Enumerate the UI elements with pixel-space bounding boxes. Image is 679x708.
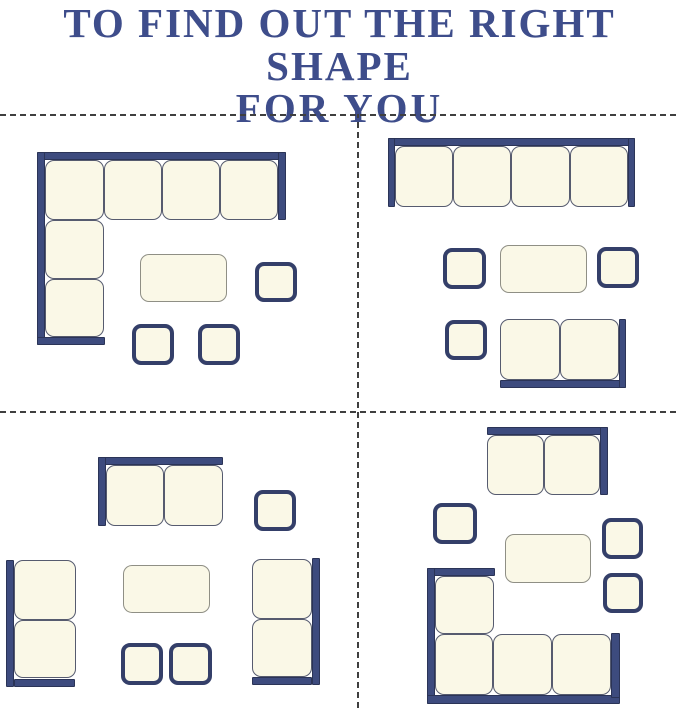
side-ottoman — [433, 503, 477, 544]
corner-sectional-sofa-cushion — [552, 634, 611, 695]
corner-sectional-sofa-back-bar — [37, 152, 45, 345]
side-ottoman — [254, 490, 296, 531]
four-seat-sofa-back-bar — [388, 138, 395, 207]
corner-sectional-sofa-cushion — [45, 279, 104, 337]
corner-sectional-sofa-back-bar — [37, 337, 105, 345]
left-loveseat-cushion — [14, 620, 76, 678]
coffee-table — [500, 245, 587, 293]
side-ottoman — [255, 262, 297, 302]
loveseat-cushion — [500, 319, 560, 380]
corner-sectional-sofa-back-bar — [37, 152, 286, 160]
loveseat-cushion — [487, 435, 544, 495]
coffee-table — [123, 565, 210, 613]
four-seat-sofa-cushion — [570, 146, 628, 207]
right-loveseat-back-bar — [252, 677, 312, 685]
page-title: TO FIND OUT THE RIGHT SHAPE FOR YOU — [0, 2, 679, 130]
loveseat-back-bar — [500, 380, 626, 388]
left-loveseat-back-bar — [6, 560, 14, 687]
side-ottoman — [603, 573, 643, 613]
side-ottoman — [443, 248, 486, 289]
corner-sectional-sofa-back-bar — [611, 633, 620, 698]
ottoman — [121, 643, 163, 685]
section-divider-v — [357, 114, 359, 708]
loveseat-back-bar — [619, 319, 626, 388]
corner-sectional-sofa-back-bar — [427, 568, 495, 576]
four-seat-sofa-back-bar — [388, 138, 635, 146]
corner-sectional-sofa-cushion — [220, 160, 278, 220]
corner-sectional-sofa-cushion — [45, 160, 104, 220]
four-seat-sofa-cushion — [453, 146, 511, 207]
four-seat-sofa-cushion — [395, 146, 453, 207]
loveseat-cushion — [106, 465, 164, 526]
four-seat-sofa-back-bar — [628, 138, 635, 207]
ottoman — [445, 320, 487, 360]
page-title-line-2: FOR YOU — [0, 87, 679, 130]
left-loveseat-cushion — [14, 560, 76, 620]
side-ottoman — [602, 518, 643, 559]
right-loveseat-back-bar — [312, 558, 320, 685]
corner-sectional-sofa-cushion — [493, 634, 552, 695]
right-loveseat-cushion — [252, 559, 312, 619]
loveseat-cushion — [164, 465, 223, 526]
corner-sectional-sofa-back-bar — [278, 152, 286, 220]
section-divider-h — [0, 411, 679, 413]
corner-sectional-sofa-back-bar — [427, 695, 620, 704]
layout-diagram: TO FIND OUT THE RIGHT SHAPE FOR YOU — [0, 0, 679, 708]
page-title-line-1: TO FIND OUT THE RIGHT SHAPE — [0, 2, 679, 87]
coffee-table — [505, 534, 591, 583]
loveseat-back-bar — [600, 427, 608, 495]
ottoman — [198, 324, 240, 365]
side-ottoman — [597, 247, 639, 288]
four-seat-sofa-cushion — [511, 146, 570, 207]
section-divider-h — [0, 114, 679, 116]
corner-sectional-sofa-back-bar — [427, 568, 435, 704]
loveseat-back-bar — [98, 457, 106, 526]
corner-sectional-sofa-cushion — [435, 576, 494, 634]
loveseat-cushion — [560, 319, 619, 380]
coffee-table — [140, 254, 227, 302]
corner-sectional-sofa-cushion — [435, 634, 493, 695]
loveseat-back-bar — [98, 457, 223, 465]
corner-sectional-sofa-cushion — [104, 160, 162, 220]
loveseat-back-bar — [487, 427, 608, 435]
ottoman — [169, 643, 212, 685]
corner-sectional-sofa-cushion — [162, 160, 220, 220]
corner-sectional-sofa-cushion — [45, 220, 104, 279]
ottoman — [132, 324, 174, 365]
right-loveseat-cushion — [252, 619, 312, 677]
left-loveseat-back-bar — [14, 679, 75, 687]
loveseat-cushion — [544, 435, 600, 495]
